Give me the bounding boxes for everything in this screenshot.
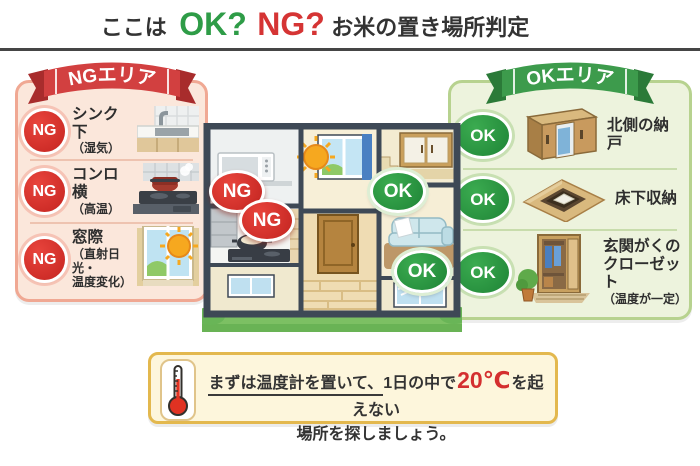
house-ng-badge-2: NG [239,199,295,242]
ng-item-label: コンロ横 [72,166,122,202]
thermometer-icon [160,359,196,426]
ok-item-entrance-closet: OK [451,231,689,314]
sofa-icon [389,217,453,246]
title-ng-text: NG? [257,6,325,42]
entrance-closet-icon [516,233,596,312]
ok-badge: OK [457,252,509,293]
ng-badge: NG [24,171,65,212]
kitchen-sink-icon [137,106,199,157]
exterior-window-left-icon [228,275,274,297]
note-temperature-value: 20℃ [457,367,510,393]
ng-item-window: NG 窓際 （直射日光・ 温度変化） [18,224,205,295]
ok-item-underfloor: OK 床下収納 [451,170,689,229]
ok-item-label: 床下収納 [615,190,677,208]
ok-badge: OK [457,115,509,156]
note-line-1: まずは温度計を置いて、1日の中で20℃を起えない [203,363,549,423]
ok-item-sub: （温度が一定） [603,293,683,307]
ng-badge: NG [24,111,65,152]
note-mid-text: 1日の中で [383,375,456,392]
ng-item-sub: （直射日光・ 温度変化） [72,248,130,289]
ng-item-label: 窓際 [72,229,130,247]
note-line-2: 場所を探しましょう。 [203,423,549,448]
title-divider-line [0,48,700,51]
ok-badge: OK [457,179,509,220]
ng-item-sub: （湿気） [72,142,130,156]
ng-item-sub: （高温） [72,203,122,217]
ok-area-panel: OKエリア OK 北側の納戸 [448,80,692,320]
infographic-canvas: ここは OK? NG? お米の置き場所判定 NGエリア NG シンク下 （湿気） [0,0,700,466]
title-prefix: ここは [101,15,167,40]
ng-area-panel: NGエリア NG シンク下 （湿気） [15,80,208,302]
house-ok-badge-1: OK [370,170,426,213]
ok-item-label: 北側の納戸 [607,117,683,153]
ng-item-stove: NG コンロ横 （高温） [18,161,205,222]
page-title: ここは OK? NG? お米の置き場所判定 [0,6,700,43]
ok-item-label: 玄関がくの クローゼット [603,238,683,291]
ok-item-north-closet: OK 北側の納戸 [451,103,689,168]
temperature-note: まずは温度計を置いて、1日の中で20℃を起えない 場所を探しましょう。 [148,352,558,424]
ng-ribbon-banner: NGエリア [26,58,198,104]
gas-stove-icon [129,163,199,220]
note-text: まずは温度計を置いて、1日の中で20℃を起えない 場所を探しましょう。 [203,363,549,448]
ng-item-sink: NG シンク下 （湿気） [18,103,205,159]
ok-ribbon-banner: OKエリア [484,58,656,104]
ng-item-label: シンク下 [72,106,130,142]
house-ok-badge-2: OK [394,250,450,293]
door-icon [318,215,358,273]
ng-badge: NG [24,239,65,280]
house-illustration: NG NG OK OK [202,123,462,332]
sunny-window-icon [137,226,199,293]
title-suffix: お米の置き場所判定 [331,15,529,40]
storage-cabinet-icon [516,105,600,166]
note-underlined-text: まずは温度計を置いて、 [208,375,383,396]
underfloor-storage-icon [516,172,608,227]
title-ok-text: OK? [179,6,247,42]
